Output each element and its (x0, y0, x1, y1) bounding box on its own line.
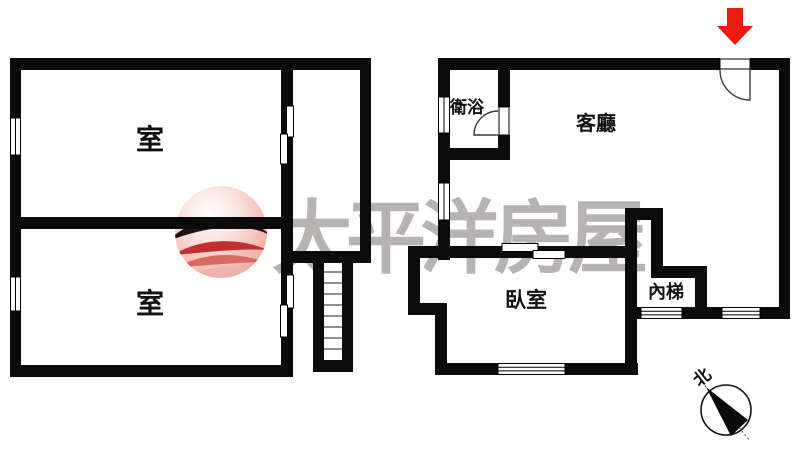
window-icon (498, 364, 565, 375)
window-icon (439, 183, 450, 220)
bath-door-opening (499, 107, 509, 135)
room-label-left-bottom: 室 (136, 287, 164, 319)
compass-north-label: 北 (690, 365, 715, 390)
window-icon (439, 97, 450, 133)
floorplan-canvas: 太平洋房屋 (0, 0, 800, 468)
entrance-arrow-icon (717, 8, 753, 45)
window-icon (641, 308, 682, 319)
entry-door-swing-icon (720, 69, 750, 100)
left-unit-walls (10, 58, 371, 377)
room-label-bathroom: 衛浴 (449, 97, 485, 117)
room-label-left-top: 室 (136, 123, 164, 155)
window-icon (11, 118, 21, 155)
compass-icon: 北 (690, 365, 751, 441)
entry-door-opening (720, 59, 750, 69)
room-label-inner-stairs: 內梯 (648, 281, 684, 302)
room-label-living-room: 客廳 (575, 111, 616, 135)
window-icon (11, 277, 21, 311)
room-label-bedroom: 臥室 (505, 288, 547, 312)
stairwell-floor (324, 263, 342, 360)
window-icon (722, 308, 760, 319)
floor-plan: 北 室 室 衛浴 客廳 臥室 內梯 (0, 0, 800, 468)
